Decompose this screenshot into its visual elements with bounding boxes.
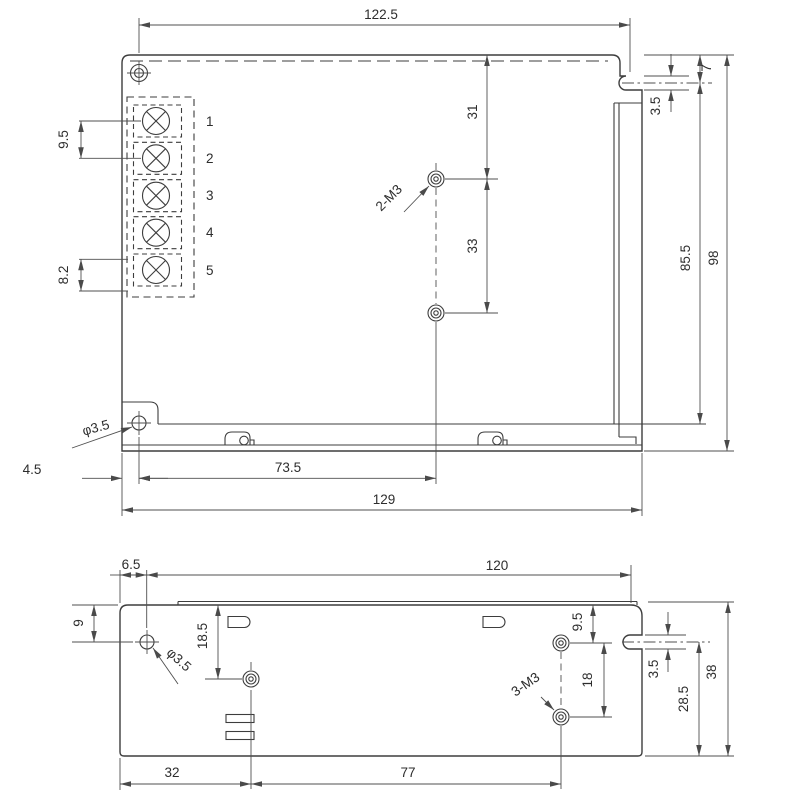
dim-holes-offset-left: 73.5 [275,460,301,475]
drawing-page: 1 2 3 4 5 122.5 [0,0,800,800]
dim-terminal-pitch: 9.5 [56,130,71,149]
dim-hole-offset-top: 9 [71,619,86,627]
dim-right-hole-pitch: 18 [580,672,595,687]
side-wall-bar [614,103,642,444]
terminal-5 [134,254,182,286]
terminal-number-5: 5 [206,263,214,278]
label-holes-bottom-view: 3-M3 [509,669,543,699]
dim-notch-to-bottom: 28.5 [676,686,691,712]
dim-hole-offset-left: 6.5 [122,557,141,572]
top-view-body-outline [122,55,642,451]
terminal-number-1: 1 [206,114,214,129]
bottom-view-dimensions: 6.5 120 9 φ3.5 18.5 9.5 18 3-M3 [71,557,734,790]
dim-total-height-bottom: 38 [704,664,719,679]
terminal-4 [134,217,182,249]
dim-right-hole-offset-top: 9.5 [570,613,585,632]
mechanical-drawing: 1 2 3 4 5 122.5 [0,0,800,800]
dim-holes-span: 77 [400,765,415,780]
side-hole-bottom-left [127,411,151,435]
dim-hole-offset-top: 31 [465,104,480,119]
terminal-number-3: 3 [206,188,214,203]
dim-mount-width: 120 [486,558,509,573]
mount-hole-top-left [127,61,151,85]
dim-terminal-slot: 8.2 [56,266,71,285]
dim-mount-height: 85.5 [678,245,693,271]
hook-tab-right [478,432,507,445]
terminal-3 [134,180,182,212]
louver-slot-2 [226,732,254,740]
dim-hole-pitch: 33 [465,238,480,253]
hook-tab-left [225,432,254,445]
terminal-number-4: 4 [206,225,214,240]
terminal-block: 1 2 3 4 5 [127,97,214,297]
bottom-view: 6.5 120 9 φ3.5 18.5 9.5 18 3-M3 [71,557,734,790]
label-holes-top-view: 2-M3 [373,182,405,214]
m3-holes-top-view [428,163,444,484]
dim-side-hole-offset: 4.5 [23,462,42,477]
dim-hole1-offset-left: 32 [164,765,179,780]
dim-total-width: 129 [373,492,396,507]
louver-slot-1 [226,715,254,723]
vent-slot-left [228,617,250,628]
dim-width-mount: 122.5 [364,7,398,22]
side-hole-bottom-view [135,630,159,654]
terminal-number-2: 2 [206,151,214,166]
dim-total-height: 98 [706,250,721,265]
bottom-wall-and-flange [122,402,706,445]
dim-notch-width-top: 3.5 [648,97,663,116]
dim-notch-offset: 7 [699,64,714,72]
dim-notch-width-bottom: 3.5 [646,660,661,679]
label-side-hole-top-view: φ3.5 [81,417,111,439]
dim-hole1-offset-top: 18.5 [195,623,210,649]
top-view-dimensions: 122.5 9.5 8.2 31 33 2-M3 [23,7,734,516]
top-view: 1 2 3 4 5 122.5 [23,7,734,516]
vent-slot-right [483,617,505,628]
